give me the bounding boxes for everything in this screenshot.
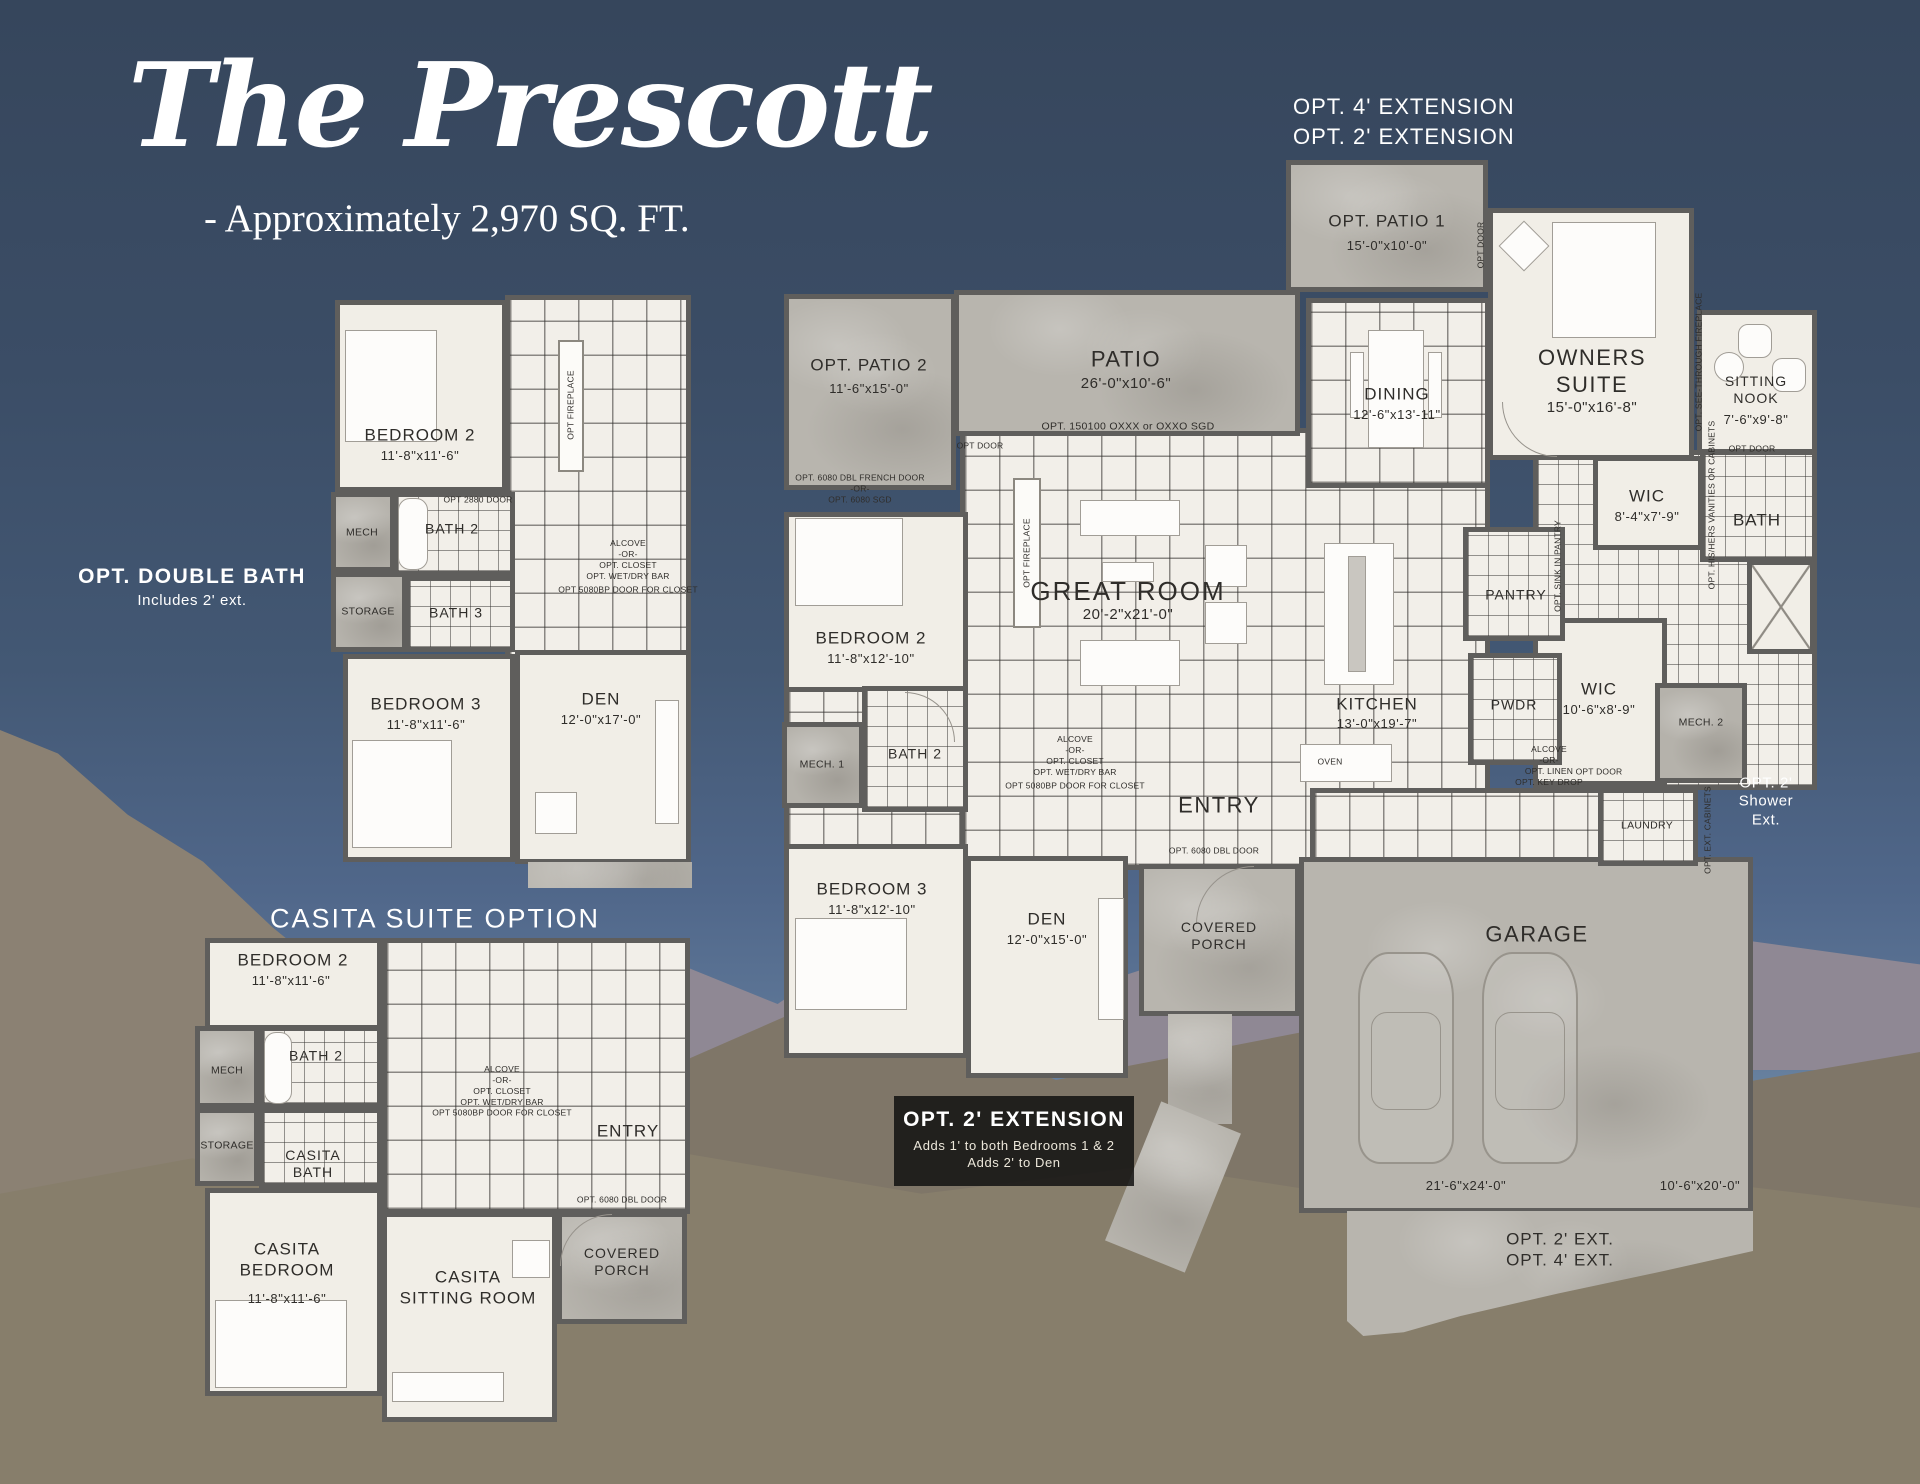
label-covered-porch: COVERED PORCH	[1181, 919, 1257, 953]
dbo-label-bath-2: BATH 2	[425, 520, 479, 537]
label-wic-owners: WIC	[1629, 487, 1665, 508]
dims-bedroom-2-main: 11'-8"x12'-10"	[827, 651, 914, 667]
dbo-note-closet-door: OPT 5080BP DOOR FOR CLOSET	[558, 584, 698, 595]
note-see-through-fireplace: OPT. SEE-THROUGH FIREPLACE	[1693, 293, 1704, 432]
casita-note-alcove: ALCOVE -OR- OPT. CLOSET OPT. WET/DRY BAR	[460, 1064, 543, 1108]
sofa-symbol-great-1	[1080, 500, 1180, 536]
dims-den-main: 12'-0"x15'-0"	[1007, 932, 1088, 948]
dims-bedroom-3-main: 11'-8"x12'-10"	[828, 902, 915, 918]
label-wic-2: WIC	[1581, 680, 1617, 701]
label-sitting-nook: SITTING NOOK	[1725, 373, 1787, 407]
dbo-dims-den: 12'-0"x17'-0"	[561, 712, 642, 728]
dims-opt-patio-2: 11'-6"x15'-0"	[829, 381, 909, 397]
plan-subtitle: - Approximately 2,970 SQ. FT.	[204, 196, 690, 241]
bed-symbol-owners	[1552, 222, 1656, 338]
label-kitchen: KITCHEN	[1336, 695, 1418, 716]
dims-great-room: 20'-2"x21'-0"	[1083, 606, 1173, 624]
option-box-line2: Adds 2' to Den	[967, 1155, 1060, 1171]
label-owners-bath: BATH	[1733, 511, 1781, 532]
label-entry: ENTRY	[1178, 793, 1260, 820]
car-symbol-2	[1482, 952, 1578, 1164]
label-opt-patio-2: OPT. PATIO 2	[810, 356, 927, 377]
note-opt-fireplace: OPT FIREPLACE	[1021, 518, 1032, 588]
note-alcove-linen: ALCOVE -OR- OPT. LINEN OPT. KEY DROP	[1515, 744, 1583, 788]
room-shower	[1747, 560, 1815, 654]
label-garage: GARAGE	[1485, 922, 1588, 949]
casita-label-mech: MECH	[211, 1065, 243, 1078]
label-laundry: LAUNDRY	[1621, 820, 1673, 833]
option-box-line1: Adds 1' to both Bedrooms 1 & 2	[913, 1138, 1114, 1154]
dbo-porch-strip	[528, 862, 692, 888]
dbo-plan-sublabel: Includes 2' ext.	[137, 592, 246, 610]
bed-symbol-bedroom-2	[795, 518, 903, 606]
dims-wic-owners: 8'-4"x7'-9"	[1615, 509, 1680, 525]
dbo-tile-area	[505, 295, 691, 667]
label-bedroom-2-main: BEDROOM 2	[815, 629, 926, 650]
car-windshield	[1371, 1012, 1441, 1110]
dbo-note-door: OPT 2880 DOOR	[443, 494, 512, 505]
dims-owners-suite: 15'-0"x16'-8"	[1547, 399, 1637, 417]
casita-note-closet-door: OPT 5080BP DOOR FOR CLOSET	[432, 1107, 572, 1118]
note-patio-door: OPT. 150100 OXXX or OXXO SGD	[1042, 421, 1215, 434]
note-alcove-closet-main: ALCOVE -OR- OPT. CLOSET OPT. WET/DRY BAR	[1033, 734, 1116, 778]
dims-garage-large-bay: 21'-6"x24'-0"	[1426, 1178, 1507, 1194]
casita-label-casita-bedroom: CASITA BEDROOM	[240, 1239, 335, 1280]
dbo-label-mech: MECH	[346, 527, 378, 540]
dbo-plan-label: OPT. DOUBLE BATH	[78, 564, 306, 590]
dims-opt-patio-1: 15'-0"x10'-0"	[1347, 238, 1428, 254]
chair-symbol-nook-1	[1738, 324, 1772, 358]
label-patio: PATIO	[1091, 347, 1161, 374]
chair-symbol-great-2	[1205, 602, 1247, 644]
label-mech-2: MECH. 2	[1679, 717, 1724, 730]
tub-symbol-casita-bath2	[264, 1032, 292, 1104]
label-opt-patio-1: OPT. PATIO 1	[1328, 212, 1445, 233]
dbo-note-fireplace: OPT FIREPLACE	[565, 370, 576, 440]
casita-label-casita-bath: CASITA BATH	[285, 1147, 341, 1181]
label-bedroom-3-main: BEDROOM 3	[816, 880, 927, 901]
dbo-label-bath-3: BATH 3	[429, 604, 483, 621]
label-owners-suite: OWNERS SUITE	[1538, 345, 1646, 399]
note-opt-door-nook: OPT DOOR	[1729, 443, 1776, 454]
note-french-door: OPT. 6080 DBL FRENCH DOOR -OR- OPT. 6080…	[795, 472, 924, 505]
bed-symbol-casita	[215, 1300, 347, 1388]
note-closet-door-main: OPT 5080BP DOOR FOR CLOSET	[1005, 780, 1145, 791]
dbo-label-bedroom-2: BEDROOM 2	[364, 426, 475, 447]
car-symbol-1	[1358, 952, 1454, 1164]
note-dbl-door: OPT. 6080 DBL DOOR	[1169, 845, 1259, 856]
note-ext-cabinets: OPT. EXT. CABINETS	[1702, 786, 1713, 874]
plan-title: The Prescott	[128, 38, 931, 174]
label-pantry: PANTRY	[1485, 586, 1547, 603]
note-pantry-sink: OPT. SINK IN PANTRY	[1552, 520, 1563, 612]
extension-note-top: OPT. 4' EXTENSION OPT. 2' EXTENSION	[1293, 92, 1515, 151]
casita-plan-label: CASITA SUITE OPTION	[270, 903, 600, 936]
note-driveway-ext: OPT. 2' EXT. OPT. 4' EXT.	[1506, 1229, 1614, 1270]
casita-dims-bedroom-2: 11'-8"x11'-6"	[252, 973, 331, 989]
note-opt-door-great: OPT DOOR	[957, 440, 1004, 451]
floorplan-sheet: The Prescott - Approximately 2,970 SQ. F…	[0, 0, 1920, 1484]
dims-kitchen: 13'-0"x19'-7"	[1337, 716, 1418, 732]
label-pwdr: PWDR	[1491, 696, 1538, 713]
car-windshield	[1495, 1012, 1565, 1110]
dbo-note-alcove: ALCOVE -OR- OPT. CLOSET OPT. WET/DRY BAR	[586, 538, 669, 582]
dbo-label-den: DEN	[582, 690, 621, 711]
dims-wic-2: 10'-6"x8'-9"	[1563, 702, 1636, 718]
casita-label-sitting-room: CASITA SITTING ROOM	[400, 1267, 537, 1308]
bed-symbol-dbo-bedroom3	[352, 740, 452, 848]
option-box-title: OPT. 2' EXTENSION	[903, 1107, 1125, 1133]
sofa-symbol-den	[1098, 898, 1124, 1020]
casita-label-entry: ENTRY	[597, 1122, 659, 1143]
room-mech-2	[1655, 683, 1747, 783]
dims-dining: 12'-6"x13'-11"	[1353, 407, 1440, 423]
dbo-label-storage: STORAGE	[341, 606, 394, 619]
label-dining: DINING	[1364, 385, 1430, 406]
casita-label-storage: STORAGE	[200, 1140, 253, 1153]
casita-note-dbl-door: OPT. 6080 DBL DOOR	[577, 1194, 667, 1205]
tub-symbol-dbo-bath2	[398, 498, 428, 570]
label-great-room: GREAT ROOM	[1030, 576, 1225, 608]
dbo-dims-bedroom-2: 11'-8"x11'-6"	[381, 448, 460, 464]
kitchen-island-counter	[1348, 556, 1366, 672]
oven-cabinet	[1300, 744, 1392, 782]
dims-garage-small-bay: 10'-6"x20'-0"	[1660, 1178, 1741, 1194]
label-bath-2-main: BATH 2	[888, 745, 942, 762]
note-shower-ext: OPT. 2' Shower Ext.	[1739, 775, 1793, 830]
casita-dims-casita-bedroom: 11'-8"x11'-6"	[248, 1291, 327, 1307]
dims-sitting-nook: 7'-6"x9'-8"	[1724, 412, 1789, 428]
dbo-dims-bedroom-3: 11'-8"x11'-6"	[387, 717, 466, 733]
casita-label-covered-porch: COVERED PORCH	[584, 1245, 660, 1279]
room-owners-bath	[1700, 450, 1817, 562]
casita-label-bedroom-2: BEDROOM 2	[237, 951, 348, 972]
note-opt-door-patio1: OPT DOOR	[1475, 222, 1486, 269]
dims-patio: 26'-0"x10'-6"	[1081, 375, 1171, 393]
label-den-main: DEN	[1028, 910, 1067, 931]
label-mech-1: MECH. 1	[800, 759, 845, 772]
casita-label-bath-2: BATH 2	[289, 1047, 343, 1064]
sofa-symbol-casita-sitting	[392, 1372, 504, 1402]
sofa-symbol-dbo-den	[655, 700, 679, 824]
dbo-label-bedroom-3: BEDROOM 3	[370, 695, 481, 716]
room-pantry	[1463, 527, 1565, 641]
sofa-symbol-great-2	[1080, 640, 1180, 686]
label-oven: OVEN	[1318, 756, 1343, 767]
chair-symbol-dbo-den	[535, 792, 577, 834]
note-vanities: OPT. HIS/HERS VANITIES OR CABINETS	[1706, 421, 1717, 590]
bed-symbol-bedroom-3	[795, 918, 907, 1010]
